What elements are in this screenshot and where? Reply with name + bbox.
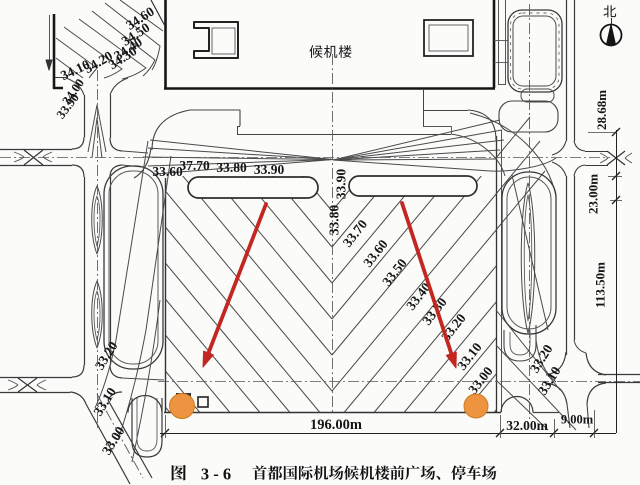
svg-text:23.00m: 23.00m xyxy=(586,174,601,214)
svg-text:196.00m: 196.00m xyxy=(310,417,362,433)
svg-text:113.50m: 113.50m xyxy=(593,262,608,308)
svg-text:9.00m: 9.00m xyxy=(561,413,594,427)
svg-text:3 - 6: 3 - 6 xyxy=(201,465,231,484)
svg-text:32.00m: 32.00m xyxy=(506,418,548,433)
svg-text:28.68m: 28.68m xyxy=(594,90,609,130)
svg-text:37.70: 37.70 xyxy=(179,158,210,173)
svg-text:33.80: 33.80 xyxy=(216,160,247,175)
svg-text:33.90: 33.90 xyxy=(254,162,285,177)
svg-text:33.90: 33.90 xyxy=(334,169,349,200)
svg-text:33.80: 33.80 xyxy=(327,205,342,236)
